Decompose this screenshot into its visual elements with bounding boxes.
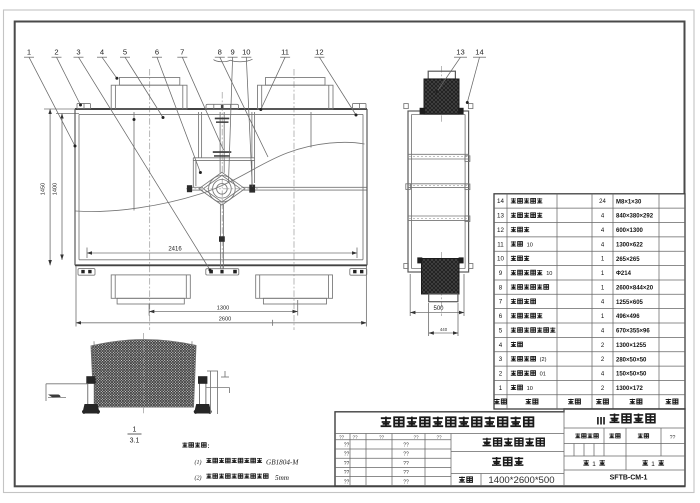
svg-text:14: 14 [475, 47, 483, 56]
svg-text:670×355×96: 670×355×96 [616, 329, 650, 335]
svg-text:1450: 1450 [41, 183, 47, 195]
svg-text:1: 1 [651, 461, 655, 468]
svg-text:2600×844×20: 2600×844×20 [616, 286, 654, 292]
svg-text:??: ?? [379, 435, 385, 440]
svg-text:13: 13 [497, 213, 504, 220]
svg-text:01: 01 [540, 371, 546, 377]
svg-text:10: 10 [527, 386, 533, 392]
svg-text:1300×172: 1300×172 [616, 386, 644, 392]
svg-text:1: 1 [133, 427, 137, 434]
svg-text:??: ?? [344, 443, 350, 449]
svg-text:2: 2 [499, 370, 503, 377]
svg-text:3: 3 [499, 356, 503, 363]
svg-text:1300×1255: 1300×1255 [616, 343, 647, 349]
svg-text:2600: 2600 [219, 317, 231, 323]
svg-text:??: ?? [403, 479, 409, 485]
svg-text:??: ?? [436, 435, 442, 440]
svg-text:150×50×50: 150×50×50 [616, 372, 647, 378]
svg-text:III: III [596, 415, 605, 427]
svg-text:11: 11 [497, 241, 504, 248]
svg-text:5: 5 [499, 327, 503, 334]
svg-text:1300×622: 1300×622 [616, 242, 644, 248]
svg-text:280×50×50: 280×50×50 [616, 357, 647, 363]
svg-text:6: 6 [155, 47, 159, 56]
svg-text:10: 10 [546, 271, 552, 277]
svg-text:2416: 2416 [168, 246, 182, 252]
svg-text:13: 13 [456, 47, 464, 56]
svg-text:??: ?? [344, 452, 350, 458]
svg-text:14: 14 [497, 198, 504, 205]
svg-text:1255×605: 1255×605 [616, 300, 644, 306]
svg-text:M8×1×30: M8×1×30 [616, 199, 642, 205]
svg-text:1: 1 [27, 47, 31, 56]
svg-text:??: ?? [670, 435, 676, 441]
svg-text:496×496: 496×496 [616, 314, 640, 320]
svg-text:10: 10 [242, 47, 250, 56]
svg-text:(2): (2) [540, 357, 547, 363]
svg-text:??: ?? [344, 479, 350, 485]
svg-text:??: ?? [403, 452, 409, 458]
svg-text:11: 11 [281, 47, 289, 56]
svg-text:1: 1 [592, 461, 596, 468]
svg-text:24: 24 [599, 199, 606, 205]
svg-text:5mm: 5mm [275, 474, 289, 482]
svg-text:(2): (2) [195, 475, 202, 482]
svg-text:2: 2 [54, 47, 58, 56]
svg-text:6: 6 [499, 313, 503, 320]
svg-text:??: ?? [344, 470, 350, 476]
svg-text:1300: 1300 [217, 305, 229, 311]
svg-text:9: 9 [230, 47, 234, 56]
svg-text:10: 10 [527, 242, 533, 248]
svg-text:??: ?? [403, 470, 409, 476]
svg-text:8: 8 [218, 47, 222, 56]
svg-text:7: 7 [499, 299, 503, 306]
svg-text:(1): (1) [195, 459, 202, 466]
svg-text:840×380×292: 840×380×292 [616, 214, 654, 220]
svg-text:500: 500 [433, 306, 444, 312]
svg-text:5: 5 [123, 47, 127, 56]
svg-text:1400: 1400 [52, 183, 58, 195]
svg-text:GB1804-M: GB1804-M [266, 459, 299, 467]
svg-text:7: 7 [180, 47, 184, 56]
svg-text:3: 3 [76, 47, 80, 56]
svg-text:10: 10 [497, 256, 504, 263]
svg-text:??: ?? [413, 435, 419, 440]
svg-text:440: 440 [440, 327, 448, 332]
svg-text:??: ?? [403, 461, 409, 467]
svg-text:1400*2600*500: 1400*2600*500 [488, 475, 554, 486]
svg-text::: : [208, 444, 210, 450]
svg-text:8: 8 [499, 284, 503, 291]
svg-text:4: 4 [499, 342, 503, 349]
svg-text:??: ?? [339, 435, 345, 440]
svg-text:12: 12 [497, 227, 504, 234]
svg-text:1: 1 [499, 385, 503, 392]
svg-text:??: ?? [344, 461, 350, 467]
svg-text:600×1300: 600×1300 [616, 228, 644, 234]
svg-text:??: ?? [403, 443, 409, 449]
svg-text:3.1: 3.1 [130, 438, 140, 445]
svg-text:4: 4 [100, 47, 104, 56]
svg-text:12: 12 [315, 47, 323, 56]
svg-text:Φ214: Φ214 [616, 271, 632, 277]
svg-text:9: 9 [499, 270, 503, 277]
svg-text:??: ?? [352, 435, 358, 440]
svg-text:SFTB-CM-1: SFTB-CM-1 [610, 475, 648, 482]
svg-text:265×265: 265×265 [616, 257, 640, 263]
